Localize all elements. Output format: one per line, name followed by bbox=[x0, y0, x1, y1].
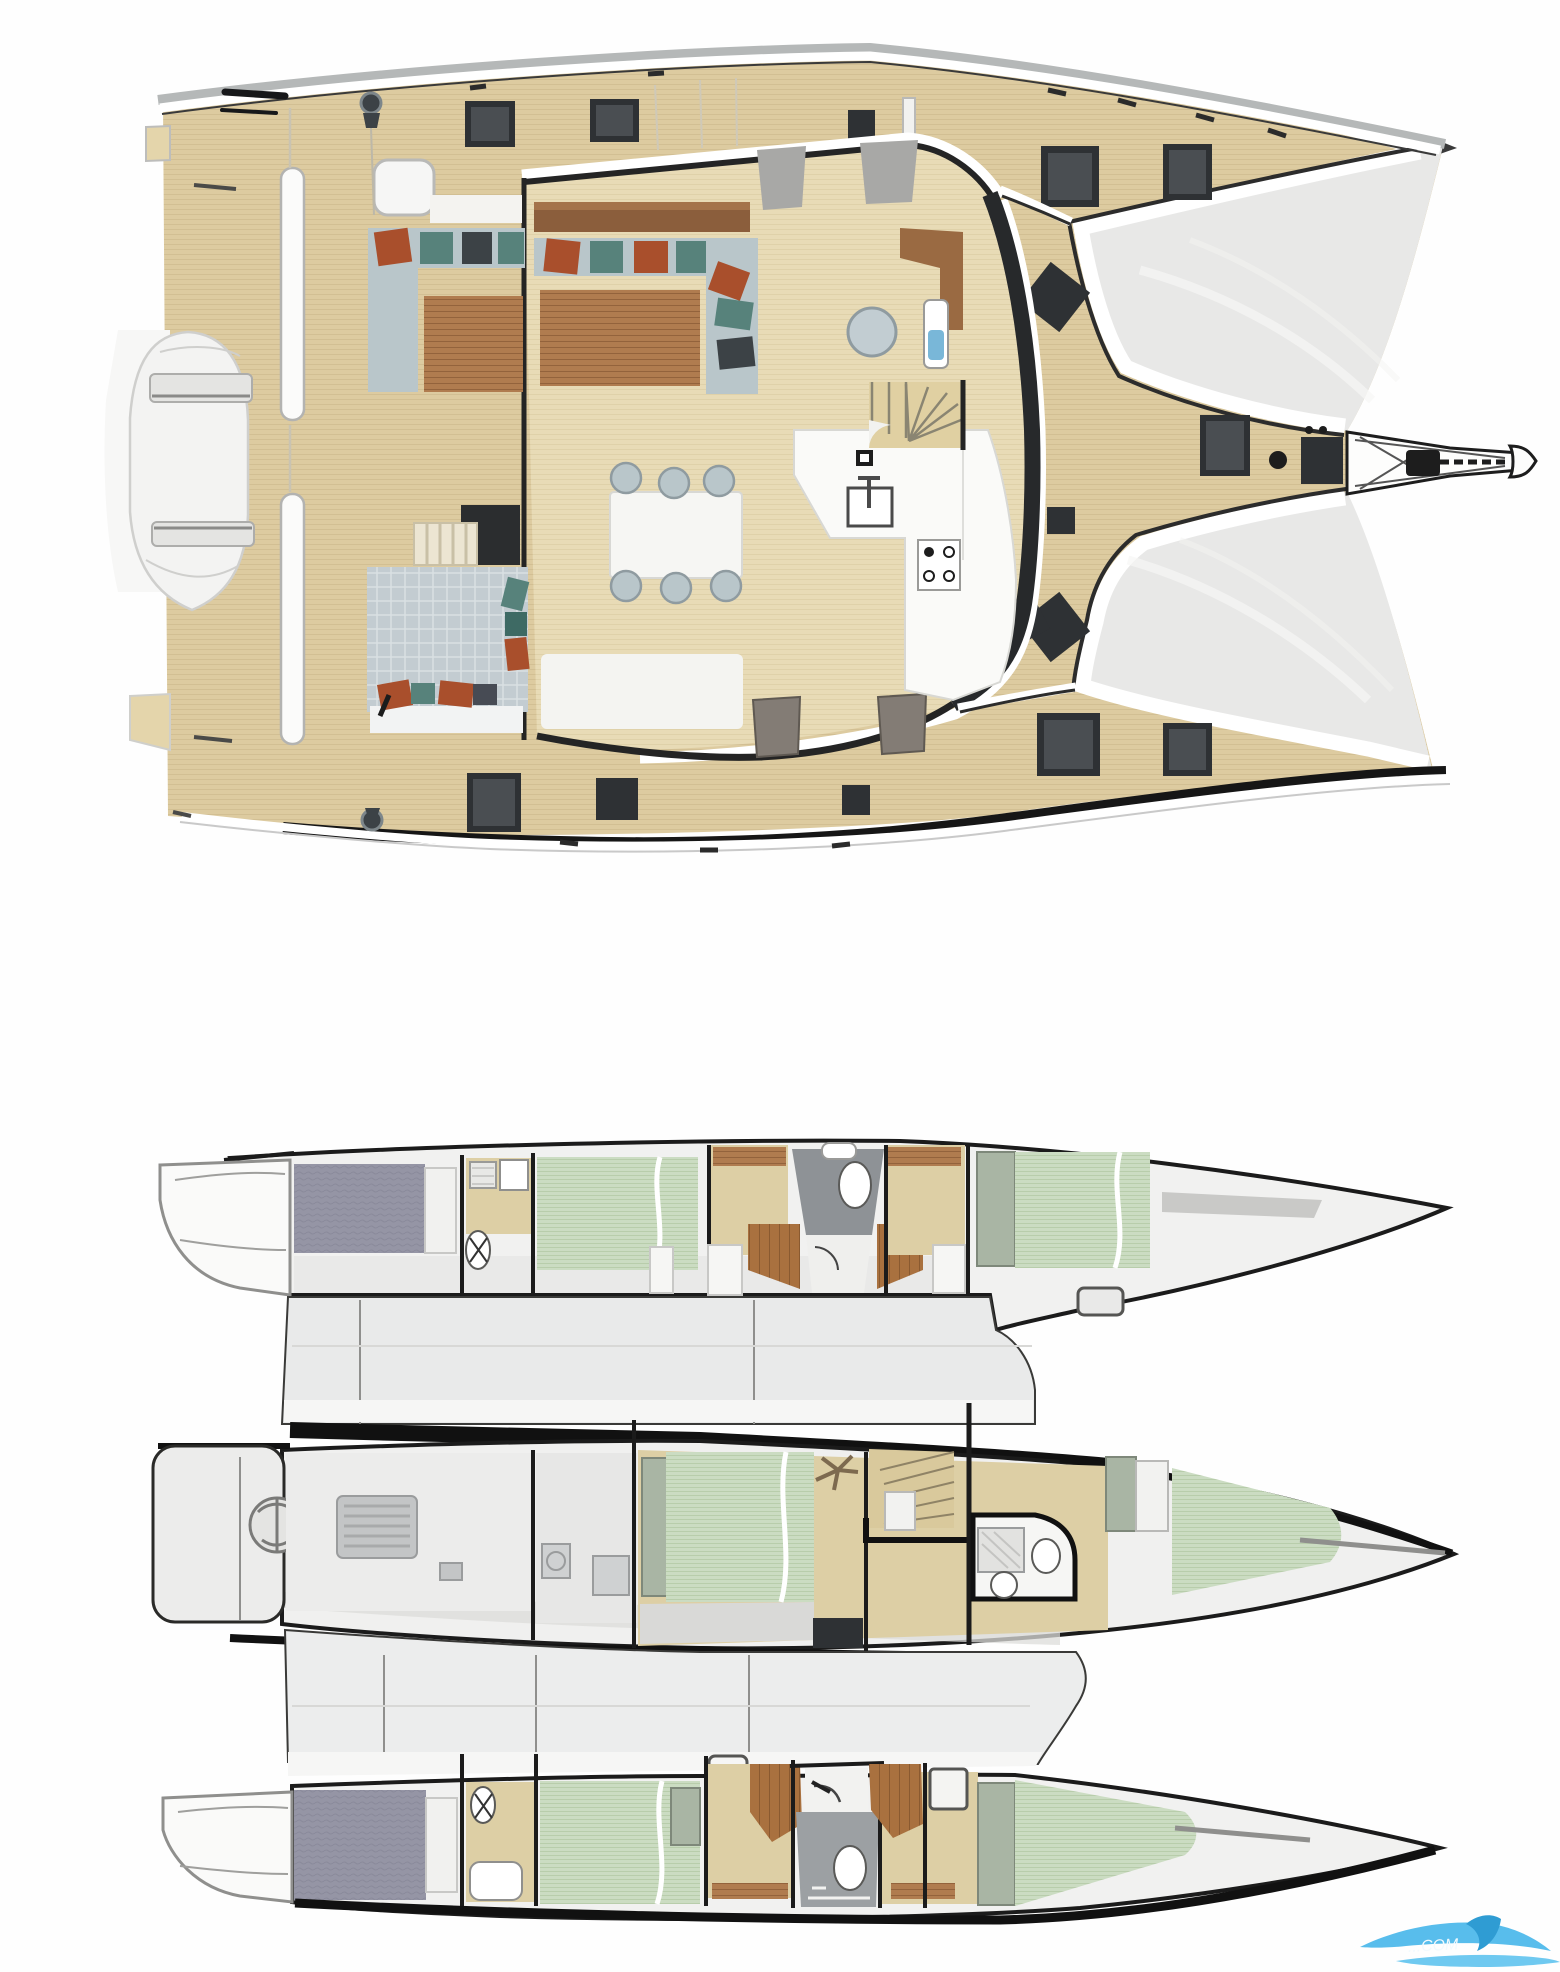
svg-text:...COM: ...COM bbox=[1407, 1936, 1459, 1956]
